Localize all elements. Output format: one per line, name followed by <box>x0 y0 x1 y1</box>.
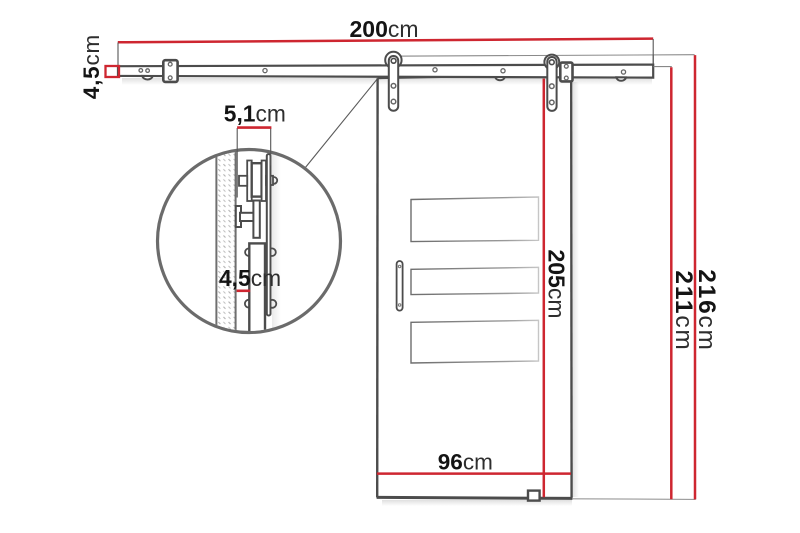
svg-text:4,5cm: 4,5cm <box>79 34 104 99</box>
svg-text:216cm: 216cm <box>693 269 720 352</box>
svg-text:96cm: 96cm <box>438 450 493 475</box>
svg-text:5,1cm: 5,1cm <box>224 101 286 127</box>
svg-text:200cm: 200cm <box>350 16 419 42</box>
svg-text:4,5cm: 4,5cm <box>219 265 281 291</box>
svg-text:211cm: 211cm <box>670 270 697 351</box>
svg-text:205cm: 205cm <box>544 249 570 318</box>
